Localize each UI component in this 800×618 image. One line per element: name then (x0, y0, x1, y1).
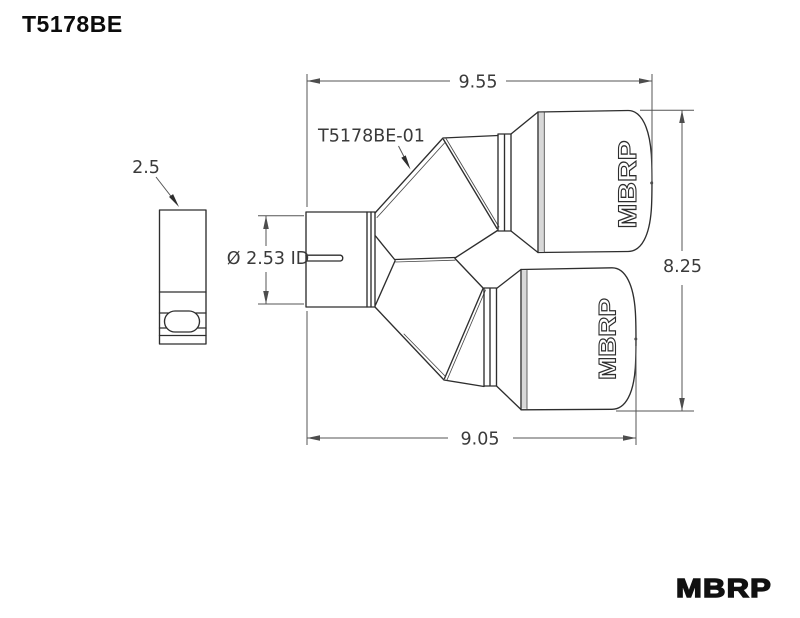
inlet-slot (306, 255, 343, 261)
dim-bottom-width-text: 9.05 (461, 430, 500, 450)
inlet-pipe (306, 212, 375, 307)
lower-branch-shade-line (404, 334, 446, 377)
upper-weld-ring-lines (498, 134, 511, 231)
clamp-bolt-housing (165, 311, 200, 332)
upper-branch-crease-1 (444, 140, 498, 229)
lower-branch-crease-1 (445, 289, 484, 379)
part-callout: T5178BE-01 (317, 127, 425, 170)
upper-branch-shade-line (377, 143, 445, 218)
bottom-width-arrow-right (623, 435, 636, 441)
lower-tip-brand-logo: MBRP (595, 298, 622, 380)
height-arrow-top (679, 110, 685, 123)
upper-branch-crease-2 (446, 139, 499, 228)
diameter-arrow-top (263, 216, 269, 229)
upper-branch-root-edge (376, 236, 396, 260)
inlet-length-leader-arrow (169, 194, 179, 207)
y-branch-lower (375, 259, 486, 387)
lower-tip-shade-band (522, 271, 527, 409)
lower-tip: MBRP (497, 268, 636, 410)
part-callout-leader-arrow (401, 155, 410, 169)
upper-tip: MBRP (511, 111, 652, 253)
y-branch-upper (375, 136, 499, 263)
lower-branch-root-edge (376, 261, 396, 305)
lower-cone-top-edge (497, 270, 522, 289)
upper-weld-ring (498, 134, 511, 231)
height-arrow-bottom (679, 398, 685, 411)
dim-inlet-length: 2.5 (132, 158, 179, 207)
dim-top-width-text: 9.55 (459, 73, 498, 93)
saddle-seam-2 (396, 260, 456, 262)
lower-cone-bottom-edge (497, 386, 522, 410)
upper-tip-shade-band (539, 113, 544, 251)
bottom-width-arrow-left (307, 435, 320, 441)
upper-cone-bottom-edge (511, 231, 538, 253)
saddle-seam-1 (395, 258, 455, 260)
inlet-side-view (160, 210, 207, 344)
lower-weld-ring (484, 288, 497, 386)
upper-branch-outer-edge (375, 136, 498, 214)
diameter-arrow-bottom (263, 291, 269, 304)
drawing-page: T5178BE 2.5 (0, 0, 800, 618)
top-width-arrow-left (307, 78, 320, 84)
lower-tip-tangent-dot (634, 338, 637, 341)
page-title: T5178BE (22, 11, 123, 37)
lower-branch-inner-edge (455, 259, 484, 289)
lower-branch-outer-edge (375, 307, 484, 387)
dim-inlet-diameter: Ø 2.53 ID (227, 216, 310, 304)
upper-branch-inner-edge (455, 231, 498, 259)
upper-tip-brand-logo: MBRP (614, 141, 642, 229)
lower-branch-crease-2 (447, 290, 486, 380)
lower-weld-ring-lines (484, 288, 497, 386)
dim-bottom-width: 9.05 (307, 311, 636, 450)
upper-tip-tangent-dot (650, 182, 653, 185)
upper-cone-top-edge (511, 112, 538, 134)
dim-overall-height-text: 8.25 (663, 257, 702, 277)
dim-inlet-diameter-text: Ø 2.53 ID (227, 249, 310, 269)
top-width-arrow-right (639, 78, 652, 84)
dim-inlet-length-text: 2.5 (132, 158, 160, 178)
inlet-pipe-outline (306, 212, 375, 307)
footer-brand-logo: MBRP (676, 573, 772, 603)
part-label-text: T5178BE-01 (317, 127, 425, 147)
technical-drawing: T5178BE 2.5 (0, 0, 800, 618)
